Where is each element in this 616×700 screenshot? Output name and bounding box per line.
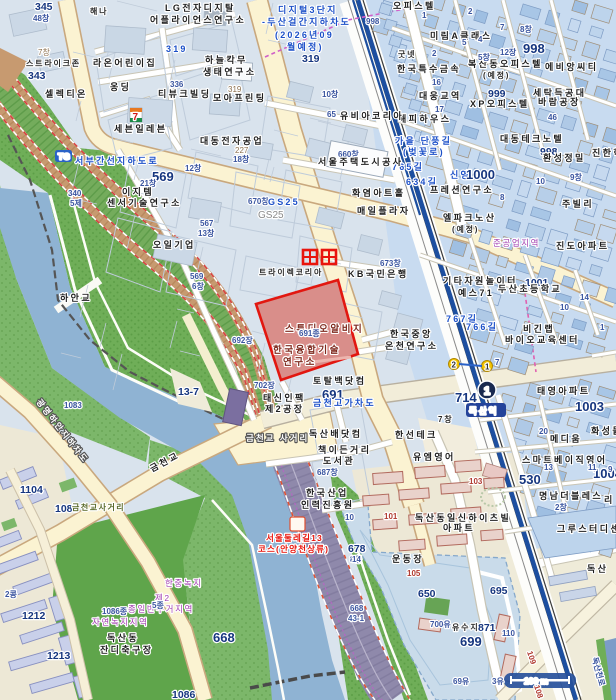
svg-text:해피하우스: 해피하우스 [398,113,451,124]
svg-text:8: 8 [500,193,505,202]
svg-text:319: 319 [302,53,320,65]
svg-text:이지템: 이지템 [122,186,154,197]
svg-text:매일플라자: 매일플라자 [357,205,410,216]
svg-text:서울주택도시공사: 서울주택도시공사 [318,156,403,167]
svg-text:한국융합기술: 한국융합기술 [273,344,341,356]
svg-text:(예정): (예정) [452,224,479,234]
svg-text:43-1: 43-1 [348,614,365,623]
svg-text:998: 998 [366,17,380,26]
svg-text:7: 7 [495,358,500,367]
svg-text:독산역: 독산역 [469,406,498,416]
svg-text:라온어린이집: 라온어린이집 [93,57,157,68]
svg-text:엘파크노산: 엘파크노산 [443,212,496,223]
svg-text:1212: 1212 [22,610,46,622]
svg-text:691종: 691종 [299,329,320,338]
svg-text:12창: 12창 [185,163,202,173]
svg-text:103: 103 [469,477,483,486]
svg-text:진도아파트: 진도아파트 [556,240,609,251]
svg-text:714: 714 [455,390,477,405]
svg-text:LG전자디지탈: LG전자디지탈 [165,2,236,13]
svg-text:692장: 692장 [232,335,253,345]
svg-text:대웅교역: 대웅교역 [419,90,462,101]
svg-text:서울둘레길13: 서울둘레길13 [266,533,323,543]
svg-text:한국산업: 한국산업 [306,487,349,498]
svg-text:화염아트홀: 화염아트홀 [352,187,405,198]
svg-text:13창: 13창 [198,228,215,238]
svg-text:10창: 10창 [322,89,339,99]
svg-text:바이오교육센터: 바이오교육센터 [505,334,580,345]
svg-text:온천연구소: 온천연구소 [385,341,438,351]
svg-text:2: 2 [432,49,437,58]
svg-text:343: 343 [28,70,46,82]
svg-text:토탈백닷컴: 토탈백닷컴 [313,375,366,386]
svg-text:XP오피스텔: XP오피스텔 [470,98,530,109]
svg-text:10: 10 [560,303,569,312]
svg-text:16: 16 [432,78,441,87]
svg-text:46: 46 [548,113,557,122]
svg-text:금천교 사거리: 금천교 사거리 [246,433,309,443]
svg-text:티뷰크빌딩: 티뷰크빌딩 [158,88,211,99]
svg-text:운동장: 운동장 [392,553,424,564]
svg-text:GS25: GS25 [268,197,300,207]
svg-text:독산배닷컴: 독산배닷컴 [309,428,362,439]
svg-text:687창: 687창 [317,467,338,477]
svg-text:227: 227 [235,146,249,155]
svg-text:678: 678 [348,543,366,555]
svg-text:1213: 1213 [47,650,71,662]
svg-text:하안교: 하안교 [60,292,92,303]
svg-text:10: 10 [536,177,545,186]
svg-text:4: 4 [478,35,483,44]
svg-text:668: 668 [213,630,235,645]
svg-text:스튜디오알비지: 스튜디오알비지 [285,323,364,335]
svg-text:리: 리 [604,494,615,505]
svg-text:1104: 1104 [20,484,43,496]
svg-text:11: 11 [588,463,597,472]
svg-text:태신인팩: 태신인팩 [263,392,306,403]
svg-text:5제: 5제 [70,198,82,208]
svg-text:디지털3단지: 디지털3단지 [278,4,338,15]
svg-text:오피스텔: 오피스텔 [393,0,436,11]
svg-text:환성정밀: 환성정밀 [543,152,586,163]
svg-text:아파트: 아파트 [443,522,475,533]
svg-text:셀렉티온: 셀렉티온 [45,88,88,99]
svg-text:오일기업: 오일기업 [153,239,196,250]
svg-text:48창: 48창 [33,13,50,23]
svg-text:1: 1 [600,323,605,332]
svg-text:700유: 700유 [430,620,451,629]
svg-text:세븐일레븐: 세븐일레븐 [114,123,167,134]
svg-text:65: 65 [327,110,336,119]
svg-text:도서관: 도서관 [323,455,355,466]
svg-text:319: 319 [166,44,188,54]
svg-text:13-7: 13-7 [178,386,199,398]
svg-text:670창: 670창 [248,196,269,206]
svg-text:530: 530 [519,472,541,487]
svg-text:17: 17 [435,105,444,114]
svg-text:대동전자공업: 대동전자공업 [200,135,264,146]
svg-text:바람공장: 바람공장 [538,96,581,107]
svg-text:650: 650 [418,588,436,600]
svg-text:567: 567 [200,219,214,228]
svg-text:연구소: 연구소 [283,357,317,368]
svg-text:336: 336 [170,80,184,89]
svg-text:1: 1 [422,11,427,20]
svg-text:굿넷: 굿넷 [398,49,416,59]
svg-text:하늘칵무: 하늘칵무 [205,54,248,65]
svg-text:20: 20 [539,427,548,436]
svg-text:1: 1 [485,363,490,372]
svg-text:제2공장: 제2공장 [265,403,304,414]
svg-text:메디움: 메디움 [550,433,582,444]
svg-text:인력진흥원: 인력진흥원 [301,499,354,510]
svg-text:1: 1 [484,386,490,398]
svg-text:유엠영어: 유엠영어 [413,451,456,462]
svg-text:3유: 3유 [492,677,504,686]
svg-text:7: 7 [500,23,505,32]
svg-text:12장: 12장 [500,47,517,57]
svg-text:2: 2 [452,361,457,370]
svg-text:5창: 5창 [478,52,490,62]
svg-text:예스71: 예스71 [458,287,494,298]
svg-text:진한학: 진한학 [592,147,616,158]
svg-text:비긴랩: 비긴랩 [523,323,555,334]
svg-text:345: 345 [35,1,53,13]
svg-text:옹딩: 옹딩 [110,81,131,92]
svg-text:코스(안양천상류): 코스(안양천상류) [258,544,329,554]
svg-text:(2026년09: (2026년09 [275,29,334,40]
svg-text:695: 695 [490,585,508,597]
svg-text:18창: 18창 [233,154,250,164]
svg-text:110: 110 [502,629,515,638]
svg-text:13: 13 [544,463,553,472]
svg-text:5: 5 [462,38,467,47]
svg-text:(예정): (예정) [483,70,510,80]
svg-text:금천고가차도: 금천고가차도 [313,397,376,408]
svg-text:화성물: 화성물 [591,425,616,436]
svg-text:금천교사거리: 금천교사거리 [72,502,125,512]
svg-text:준공업지역: 준공업지역 [493,238,540,248]
svg-text:7창: 7창 [438,414,453,424]
svg-text:7창: 7창 [38,48,50,57]
svg-text:340: 340 [68,189,82,198]
svg-text:트라이렉코리아: 트라이렉코리아 [259,267,323,277]
svg-text:센서기술연구소: 센서기술연구소 [107,197,182,208]
svg-text:766길: 766길 [466,321,498,332]
svg-text:TG: TG [58,152,70,162]
svg-text:스트라이크존: 스트라이크존 [26,58,81,68]
svg-text:69유: 69유 [453,677,470,686]
svg-text:702장: 702장 [254,380,275,390]
svg-text:668: 668 [350,604,364,613]
svg-text:해나: 해나 [90,6,108,16]
svg-text:319: 319 [228,85,242,94]
svg-text:잔디축구장: 잔디축구장 [100,644,153,655]
svg-text:두산초등학교: 두산초등학교 [498,283,562,294]
svg-text:9: 9 [608,465,613,474]
svg-text:생태연구소: 생태연구소 [203,66,256,77]
svg-text:KB국민은행: KB국민은행 [348,268,409,279]
svg-text:105: 105 [407,569,421,578]
svg-text:그루스터디센터: 그루스터디센터 [557,523,616,534]
svg-text:주빌리: 주빌리 [562,198,594,209]
svg-text:자연녹지지역: 자연녹지지역 [92,617,149,627]
svg-text:한국특수금속: 한국특수금속 [397,63,461,74]
svg-text:가을 단풍길: 가을 단풍길 [395,135,452,146]
svg-text:-두산걸간지하차도: -두산걸간지하차도 [262,16,351,27]
svg-text:1086: 1086 [172,689,196,700]
svg-text:10: 10 [345,513,354,522]
svg-text:569: 569 [190,272,204,281]
svg-text:GS25: GS25 [258,210,284,221]
svg-text:서부간선지하도로: 서부간선지하도로 [75,155,159,166]
svg-text:유비아코리아: 유비아코리아 [340,110,404,121]
svg-text:한선테크: 한선테크 [395,429,438,440]
svg-text:1083: 1083 [64,401,82,410]
svg-text:책이든거리: 책이든거리 [318,444,371,455]
svg-text:9창: 9창 [570,172,582,182]
svg-text:독산동일신하이츠빌: 독산동일신하이츠빌 [415,512,511,523]
svg-text:월예정): 월예정) [287,41,324,52]
svg-text:6창: 6창 [192,281,204,291]
svg-text:699: 699 [460,634,482,649]
svg-text:2창: 2창 [555,502,567,512]
svg-text:(벚꽃로): (벚꽃로) [403,146,445,157]
svg-text:14: 14 [352,555,361,564]
svg-text:독산: 독산 [587,563,608,574]
svg-text:1086종: 1086종 [102,607,128,616]
svg-text:8창: 8창 [520,24,532,34]
svg-text:101: 101 [384,512,398,521]
svg-text:명남더블레스: 명남더블레스 [539,490,603,501]
svg-text:한국중앙: 한국중앙 [390,328,433,339]
svg-text:7: 7 [133,112,139,123]
svg-text:태영아파트: 태영아파트 [537,385,590,396]
svg-text:에비앙씨티: 에비앙씨티 [545,61,598,72]
svg-text:1003: 1003 [575,399,604,414]
svg-text:프레션연구소: 프레션연구소 [430,184,494,195]
svg-text:673창: 673창 [380,258,401,268]
svg-text:대동테크노텔: 대동테크노텔 [500,133,564,144]
svg-text:14: 14 [580,293,589,302]
svg-text:998: 998 [523,41,545,56]
svg-text:어플라이언스연구소: 어플라이언스연구소 [150,14,246,25]
svg-text:한중녹지: 한중녹지 [165,578,203,588]
svg-text:2: 2 [468,7,473,16]
svg-text:1000: 1000 [466,167,495,182]
svg-text:유수지: 유수지 [452,622,479,632]
svg-text:871: 871 [478,622,496,634]
svg-text:독산동: 독산동 [107,632,139,643]
svg-text:2콩: 2콩 [5,590,17,599]
svg-text:5종: 5종 [152,601,164,610]
